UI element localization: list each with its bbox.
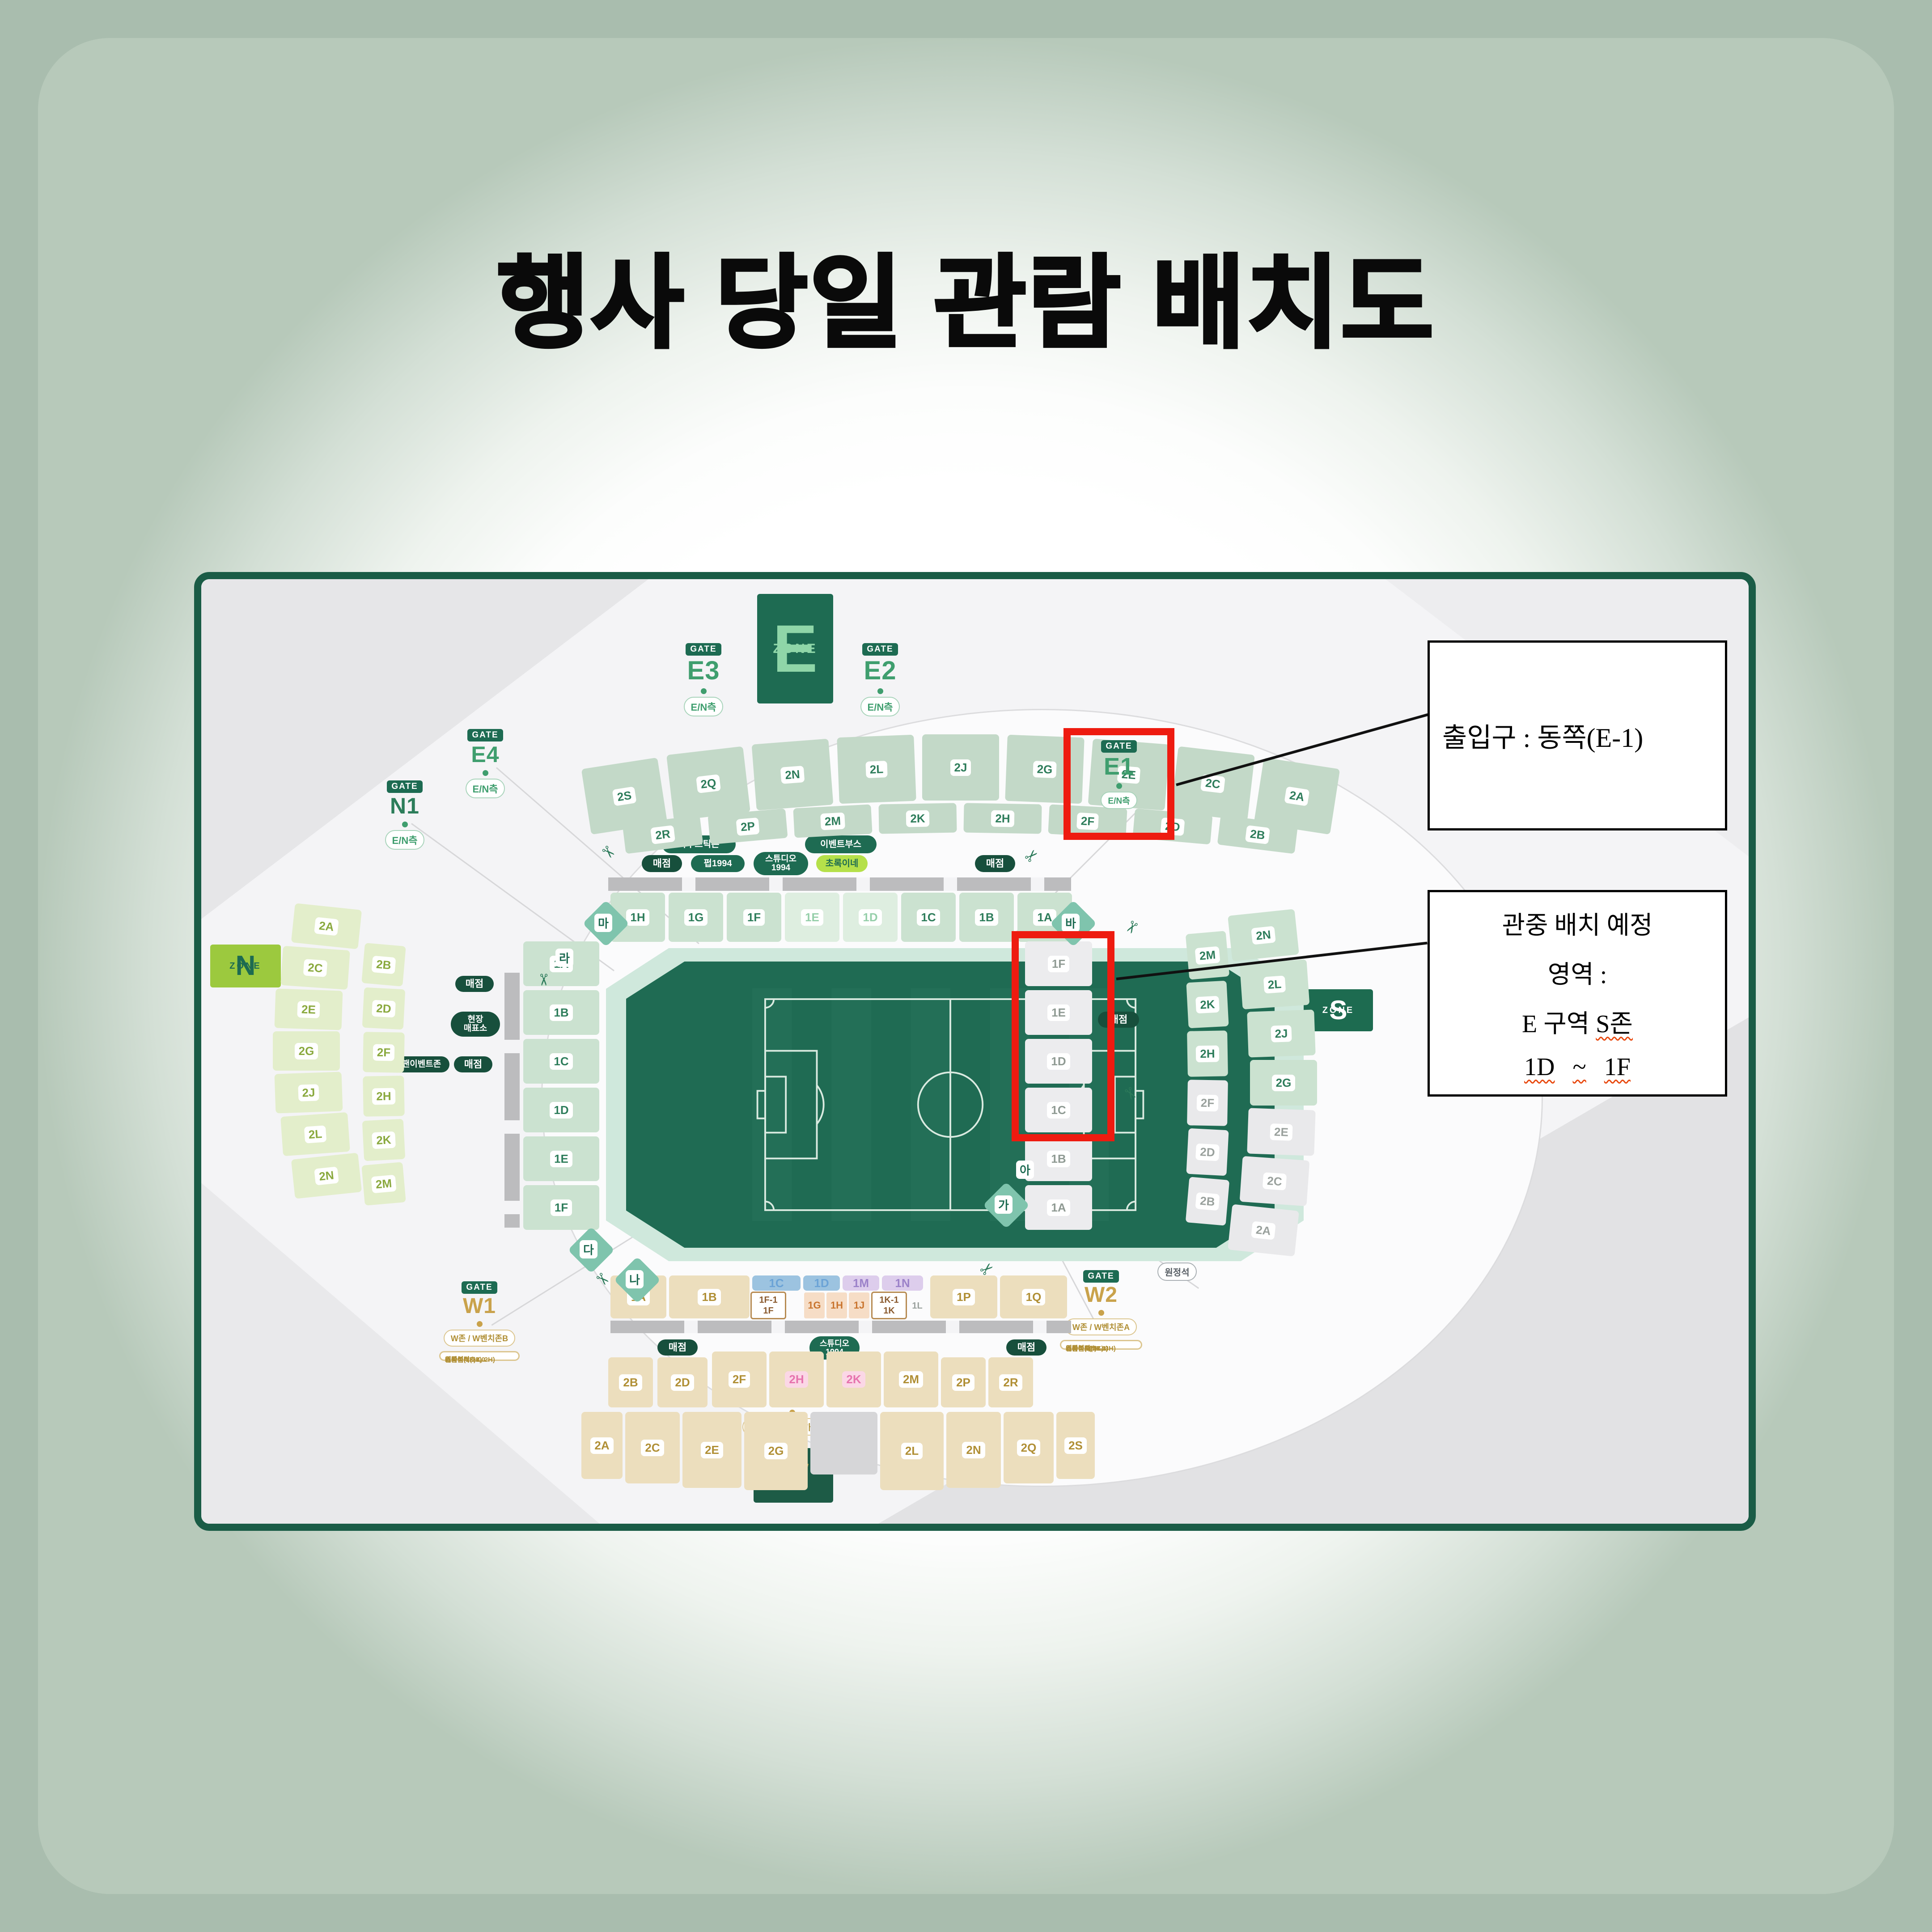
seat-section-label: 2A <box>1251 1221 1276 1240</box>
info-line: 커플석(1F-1) <box>445 1356 482 1364</box>
seat-section-label: 2B <box>1245 825 1270 844</box>
seat-section: 1A <box>1025 1185 1092 1230</box>
seat-section: 2L <box>1240 959 1310 1009</box>
premium-seat-box: 1K-11K <box>871 1292 907 1319</box>
gate-e1-code: E1 <box>1104 753 1134 780</box>
seat-section-label: 1K-1 <box>878 1295 899 1305</box>
seat-section: 1B <box>523 990 599 1035</box>
seat-section-label: 2F <box>373 1044 395 1061</box>
seat-section-label: 2P <box>952 1374 974 1391</box>
seat-section-label: 2D <box>671 1374 694 1391</box>
wall-top <box>608 877 1071 891</box>
seat-section-label: 2N <box>780 766 805 784</box>
seat-section: 1Q <box>1000 1275 1067 1318</box>
pill-snack-top-2: 매점 <box>975 855 1015 872</box>
seat-section-label: 1F <box>743 909 765 926</box>
seat-section-label: 2G <box>1033 761 1057 778</box>
seat-section: 2C <box>280 946 350 990</box>
seat-section-label: 1B <box>550 1004 572 1021</box>
seat-section-label: 2N <box>962 1442 985 1458</box>
gate-e2-chip: GATE <box>862 643 898 656</box>
seat-section: 1E <box>523 1136 599 1181</box>
pill-snack-top-1: 매점 <box>642 855 682 872</box>
seat-section: 1C <box>523 1039 599 1084</box>
placement-line3-prefix: E 구역 <box>1522 1010 1596 1038</box>
seat-section-label: 1B <box>1047 1151 1070 1167</box>
pill-pub-1994: 펍1994 <box>691 855 745 872</box>
pill-snack-bottom-2: 매점 <box>1006 1339 1046 1356</box>
zone-e-word: ZONE <box>773 641 817 657</box>
seat-section: 2L <box>880 1412 944 1490</box>
seat-section: 2B <box>608 1357 653 1407</box>
seat-section-label: 2L <box>304 1125 327 1143</box>
seat-section: 2M <box>884 1352 938 1407</box>
seat-section: 2M <box>361 1162 406 1206</box>
gate-e3-dot <box>701 688 707 694</box>
seat-section-label: 1D <box>812 1276 830 1291</box>
seat-section: 1D <box>843 893 898 942</box>
seat-section-label: 2H <box>785 1371 808 1388</box>
seat-section-label: 2A <box>314 917 339 936</box>
seat-section-label: 2C <box>303 959 327 977</box>
wall-bottom <box>610 1321 1071 1333</box>
gate-e4-chip: GATE <box>467 729 503 741</box>
gate-w2-code: W2 <box>1085 1283 1118 1307</box>
seat-section: 1B <box>959 893 1014 942</box>
seat-section-label: 2L <box>865 761 888 778</box>
pill-chorokine: 초록이네 <box>816 855 868 872</box>
placement-line4: 1D ~ 1F <box>1524 1053 1631 1081</box>
entrance-note-box: 출입구 : 동쪽(E-1) <box>1428 640 1727 830</box>
seat-section: 2F <box>363 1032 405 1073</box>
scissors-icon: ✂ <box>597 841 620 864</box>
seat-section: 1M <box>843 1275 879 1291</box>
seat-section-label: 1G <box>807 1299 822 1312</box>
seat-section-label: 2H <box>1196 1045 1219 1062</box>
aisle-label: 가 <box>995 1195 1013 1214</box>
seat-section: 2R <box>988 1357 1033 1407</box>
seat-section-label: 2M <box>820 812 845 830</box>
seat-section-label: 2L <box>901 1443 923 1459</box>
seat-section: 1F <box>727 893 781 942</box>
seat-section-label: 2J <box>1271 1025 1292 1042</box>
gate-s1-pill: 원정석 <box>1157 1263 1196 1281</box>
seat-section-label: 2K <box>906 810 929 827</box>
placement-line3-zone: S존 <box>1596 1010 1633 1038</box>
seat-section-label: 2S <box>612 786 637 806</box>
gate-n1-chip: GATE <box>387 780 422 793</box>
seat-section: 2H <box>363 1076 405 1117</box>
seat-section-label: 1F-1 <box>758 1295 778 1305</box>
seat-section-label: 1H <box>626 909 649 926</box>
seat-section-label: 1F <box>762 1306 774 1316</box>
seat-section-label: 2H <box>991 810 1014 827</box>
zone-s-word: ZONE <box>1322 1005 1355 1016</box>
seat-section: 2K <box>826 1352 881 1407</box>
seat-section-label: 2E <box>701 1442 723 1458</box>
seat-section: 1D <box>523 1088 599 1132</box>
gate-e3-chip: GATE <box>686 643 721 656</box>
seat-section-label: 1D <box>859 909 881 926</box>
seat-section-label: 1N <box>893 1276 911 1291</box>
seat-section-label: 2E <box>297 1001 320 1018</box>
seat-section: 1L <box>910 1295 925 1317</box>
seat-section-label: 2P <box>736 817 760 835</box>
stair-block <box>810 1412 877 1474</box>
seat-section-label: 2G <box>295 1043 318 1059</box>
seat-section: 2G <box>273 1031 340 1071</box>
placement-line4-to: 1F <box>1604 1053 1631 1081</box>
seat-section-label: 1A <box>1047 1199 1070 1216</box>
seat-section: 1G <box>804 1292 825 1318</box>
gate-w2-dot <box>1098 1310 1104 1316</box>
seat-section-label: 2C <box>1263 1172 1287 1190</box>
seat-section-label: 2B <box>619 1374 642 1391</box>
placement-line2: 영역 : <box>1548 954 1607 991</box>
seat-section: 2K <box>878 803 957 834</box>
seat-section-label: 1F <box>551 1199 572 1216</box>
seat-section-label: 1C <box>767 1276 785 1291</box>
pill-snack-bottom-1: 매점 <box>657 1339 698 1356</box>
placement-note-box: 관중 배치 예정 영역 : E 구역 S존 1D ~ 1F <box>1428 890 1727 1097</box>
seat-section: 1F <box>523 1185 599 1230</box>
seat-section-label: 2J <box>298 1084 319 1102</box>
seat-section-label: 1J <box>853 1299 865 1312</box>
seat-section: 2E <box>1247 1108 1315 1156</box>
gate-n1-code: N1 <box>390 793 419 819</box>
seat-section-label: 2G <box>764 1443 788 1459</box>
seat-section: 2M <box>1186 931 1230 979</box>
seat-section: 2H <box>963 803 1042 834</box>
info-line: 커플석A(1K-1) <box>1066 1345 1108 1352</box>
seat-section: 2H <box>1187 1030 1228 1077</box>
placement-line1: 관중 배치 예정 <box>1502 905 1652 941</box>
seat-section: 2J <box>1247 1009 1315 1057</box>
seat-section-label: 2D <box>1195 1143 1219 1161</box>
seat-section-label: 1E <box>801 909 823 926</box>
seat-section-label: 2F <box>1197 1094 1219 1111</box>
seat-section: 2Q <box>666 746 750 821</box>
entrance-note-text: 출입구 : 동쪽(E-1) <box>1430 716 1643 755</box>
gate-e2-dot <box>877 688 883 694</box>
soccer-pitch <box>640 988 1261 1221</box>
gate-e3-code: E3 <box>687 656 720 686</box>
seat-section-label: 1H <box>830 1299 844 1312</box>
seat-section-label: 1C <box>550 1053 572 1070</box>
wall-left <box>504 973 520 1228</box>
seat-section: 1E <box>785 893 839 942</box>
seat-section: 2D <box>362 987 406 1030</box>
seat-section: 1B <box>1025 1136 1092 1181</box>
seat-section: 2K <box>362 1119 406 1161</box>
seat-section-label: 2F <box>729 1371 750 1388</box>
aisle-label: 아 <box>1016 1161 1034 1179</box>
premium-seat-box: 1F-11F <box>750 1292 786 1319</box>
gate-e1-chip: GATE <box>1101 740 1136 753</box>
gate-n1: GATE N1 E/N측 <box>347 780 463 850</box>
seat-section-label: 1L <box>912 1301 922 1311</box>
seat-section-label: 2B <box>372 955 396 974</box>
bg-wedge-top-left <box>201 579 648 919</box>
aisle-label: 나 <box>626 1270 644 1288</box>
seat-section-label: 2K <box>1195 996 1219 1013</box>
ticket-office-line2: 매표소 <box>464 1024 487 1033</box>
gate-e4-code: E4 <box>471 741 499 767</box>
seat-section: 2J <box>275 1072 343 1113</box>
gate-e1-dot <box>1116 783 1122 789</box>
gate-w1-info: 스카이박스2.0테이블석(2K, 2H)원탁석(1F)커플석(1F-1) <box>439 1351 520 1361</box>
seat-section: 2M <box>793 804 872 838</box>
seat-section-label: 2K <box>372 1131 395 1149</box>
seat-section: 1J <box>849 1292 869 1318</box>
pill-event-booth: 이벤트부스 <box>805 835 877 853</box>
seat-section: 2A <box>581 1412 623 1479</box>
seat-section: 2B <box>1186 1177 1230 1225</box>
seat-section: 2L <box>280 1112 350 1156</box>
seat-section: 2L <box>837 735 916 804</box>
seat-section-label: 1B <box>698 1289 720 1305</box>
seat-section-label: 2R <box>650 825 675 844</box>
seat-section: 1P <box>930 1275 997 1318</box>
seat-section-label: 2H <box>372 1088 395 1105</box>
gate-e4-dot <box>483 770 488 776</box>
seat-section-label: 1G <box>684 909 708 926</box>
seat-section: 2D <box>657 1357 708 1407</box>
seat-section-label: 2N <box>314 1166 339 1185</box>
seat-section: 1B <box>669 1275 750 1318</box>
seat-section-label: 1C <box>917 909 940 926</box>
gate-w1-chip: GATE <box>462 1281 497 1294</box>
aisle-label: 다 <box>580 1240 597 1258</box>
seat-section: 2G <box>744 1412 808 1490</box>
seat-section: 2N <box>752 739 834 811</box>
seat-section-label: 2Q <box>1017 1440 1041 1456</box>
seat-section-label: 2Q <box>696 774 721 793</box>
seat-section-label: 2A <box>1284 786 1309 806</box>
pill-studio-1994-top: 스튜디오 1994 <box>754 852 808 875</box>
seat-section: 2F <box>712 1352 767 1407</box>
gate-w1: GATE W1 W존 / W벤치존B 스카이박스2.0테이블석(2K, 2H)원… <box>421 1281 538 1361</box>
seat-section: 2K <box>1186 981 1229 1029</box>
seat-section-label: 2N <box>1251 926 1276 945</box>
gate-w1-code: W1 <box>463 1294 496 1318</box>
seat-section: 2P <box>941 1357 986 1407</box>
gate-n1-dot <box>402 822 408 827</box>
seat-section-label: 2B <box>1195 1192 1220 1210</box>
seat-section-label: 2E <box>1270 1123 1292 1141</box>
seat-section-label: 2G <box>1272 1075 1296 1091</box>
seat-section: 2N <box>1228 909 1299 961</box>
seat-section: 2C <box>625 1412 680 1483</box>
seat-section-label: 2R <box>999 1374 1022 1391</box>
gate-e3-pill: E/N측 <box>684 697 724 716</box>
seat-section-label: 2M <box>371 1174 396 1193</box>
placement-line4-tilde: ~ <box>1573 1053 1586 1081</box>
gate-n1-pill: E/N측 <box>385 830 425 850</box>
seat-section-label: 2C <box>641 1440 664 1456</box>
placement-line3: E 구역 S존 <box>1522 1004 1633 1040</box>
zone-n-word: ZONE <box>229 961 262 971</box>
seat-section-label: 2M <box>1195 946 1220 965</box>
seat-section: 2E <box>682 1412 741 1488</box>
seat-section-label: 1M <box>851 1276 871 1291</box>
seat-section-label: 1B <box>975 909 998 926</box>
seat-section-label: 1P <box>953 1289 975 1305</box>
seat-section: 2C <box>1240 1156 1310 1206</box>
ticket-office-line1: 현장 <box>468 1015 483 1024</box>
bg-wedge-bottom-left <box>201 1183 604 1527</box>
seat-section-label: 1Q <box>1022 1289 1046 1305</box>
gate-e2-pill: E/N측 <box>860 697 900 716</box>
seat-section-label: 2S <box>1064 1437 1087 1454</box>
seat-section-label: 2M <box>899 1371 923 1388</box>
seat-section: 2N <box>946 1412 1001 1488</box>
zone-badge-n: N ZONE <box>210 945 281 987</box>
highlight-box-sections-1f-1e-1d <box>1012 931 1114 1141</box>
seat-section: 1D <box>803 1275 840 1291</box>
gate-e2-code: E2 <box>864 656 897 686</box>
seat-section: 2F <box>1187 1080 1228 1126</box>
pill-snack-left-2: 매점 <box>454 1056 492 1072</box>
gate-w1-pill: W존 / W벤치존B <box>444 1330 515 1347</box>
seat-section: 2D <box>1186 1128 1229 1176</box>
seat-section-label: 2L <box>1263 975 1286 993</box>
gate-w2-info: 스카이박스2.0테이블석(3K, 3H)원탁석(1L)스튜디오(1K)커플석A(… <box>1060 1340 1142 1350</box>
gate-w2-pill: W존 / W벤치존A <box>1065 1318 1137 1335</box>
pill-snack-left-1: 매점 <box>455 976 494 992</box>
gate-e1-pill: E/N측 <box>1101 792 1137 809</box>
seat-section: 2J <box>922 734 999 801</box>
seat-section: 2A <box>1228 1204 1299 1256</box>
seat-section: 1C <box>901 893 956 942</box>
seat-section: 2B <box>361 943 406 987</box>
aisle-label: 라 <box>555 949 573 967</box>
gate-w2-chip: GATE <box>1083 1270 1119 1283</box>
gate-e1: GATE E1 E/N측 <box>1061 740 1177 809</box>
seat-section: 1G <box>669 893 723 942</box>
aisle-label: 바 <box>1062 914 1080 932</box>
seat-section: 2Q <box>1004 1412 1054 1483</box>
seat-section: 2G <box>1250 1060 1317 1106</box>
gate-e2: GATE E2 E/N측 <box>822 643 938 716</box>
gate-w1-dot <box>477 1321 483 1327</box>
pill-ticket-office: 현장 매표소 <box>451 1012 500 1037</box>
scissors-icon: ✂ <box>534 973 553 987</box>
seat-section: 2N <box>291 1152 362 1199</box>
placement-line4-from: 1D <box>1524 1053 1555 1081</box>
seat-section: 2H <box>769 1352 824 1407</box>
seat-section-label: 1E <box>550 1151 572 1167</box>
seat-section: 1H <box>826 1292 847 1318</box>
gate-e4-pill: E/N측 <box>466 779 505 798</box>
seat-section-label: 2D <box>372 1000 395 1017</box>
gate-e3: GATE E3 E/N측 <box>645 643 762 716</box>
seat-section: 1N <box>882 1275 923 1291</box>
seat-section-label: 1D <box>550 1102 572 1119</box>
seat-section-label: 2J <box>950 759 971 776</box>
seat-section: 2E <box>275 988 343 1030</box>
seat-section-label: 2A <box>590 1437 613 1454</box>
seat-section-label: 1K <box>882 1306 896 1316</box>
aisle-label: 마 <box>594 914 612 932</box>
page-title: 행사 당일 관람 배치도 <box>0 221 1932 367</box>
seat-section: 1C <box>752 1275 801 1291</box>
seat-section: 2A <box>291 903 362 949</box>
seat-section-label: 2K <box>842 1371 865 1388</box>
seat-section: 2S <box>1056 1412 1095 1479</box>
